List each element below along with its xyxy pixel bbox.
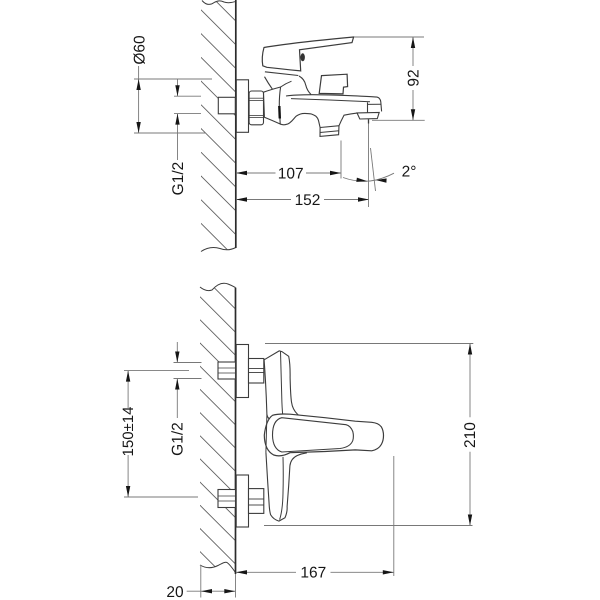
svg-text:20: 20	[166, 584, 184, 600]
svg-text:107: 107	[278, 166, 304, 183]
svg-text:210: 210	[462, 422, 479, 448]
svg-text:150±14: 150±14	[120, 407, 137, 457]
svg-text:167: 167	[300, 565, 326, 582]
svg-text:2°: 2°	[402, 164, 417, 181]
svg-text:G1/2: G1/2	[170, 162, 187, 196]
svg-text:92: 92	[405, 69, 422, 86]
svg-text:152: 152	[295, 192, 321, 209]
svg-text:G1/2: G1/2	[170, 422, 187, 456]
svg-text:Ø60: Ø60	[131, 35, 148, 65]
